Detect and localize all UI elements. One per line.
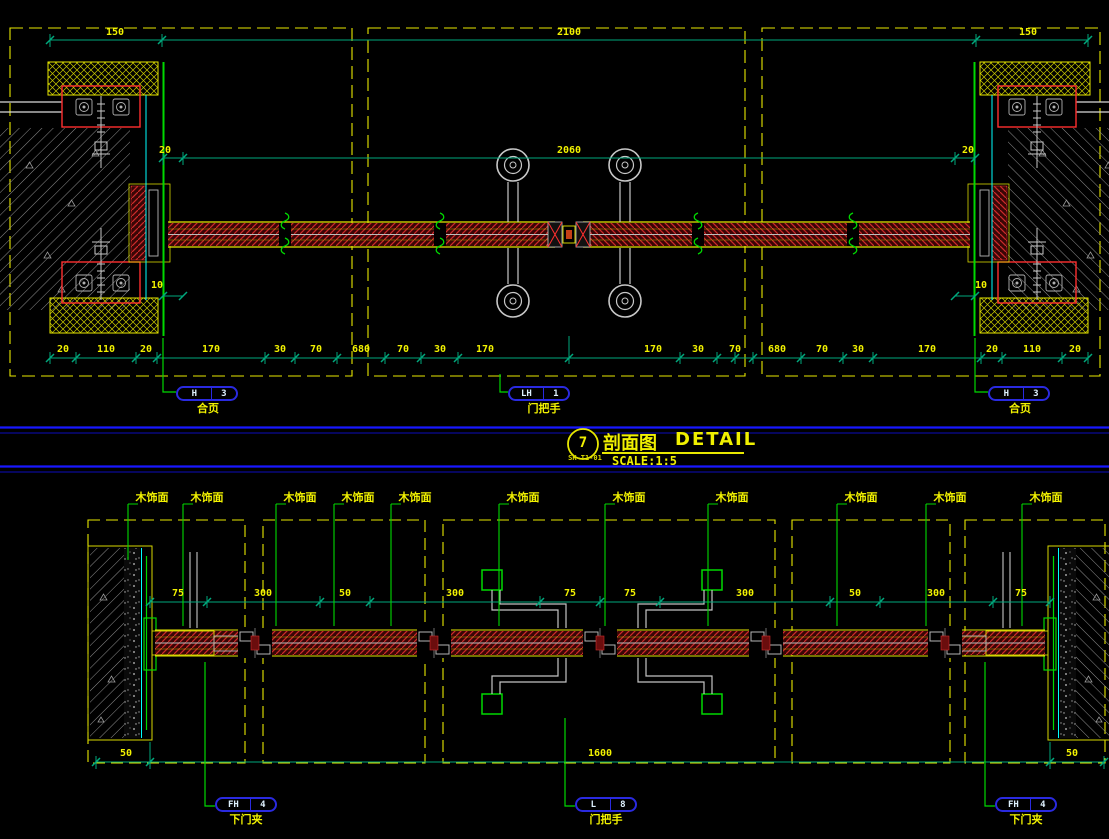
dim-label: 50 [849, 588, 861, 599]
drawing-geometry-layer [0, 0, 1109, 839]
detail-boundary-boxes [10, 28, 1100, 376]
finish-label: 木饰面 [284, 492, 317, 504]
tag-label: 下门夹 [1010, 814, 1043, 826]
tag-index: 3 [212, 388, 236, 399]
tag-label: 门把手 [528, 403, 561, 415]
dim-label: 75 [1015, 588, 1027, 599]
dim-label: 50 [120, 748, 132, 759]
right-wall-assembly [576, 62, 1109, 336]
tag-index: 4 [1031, 799, 1055, 810]
dim-label: 30 [274, 344, 286, 355]
hardware-tag-floor-clamp-left: FH 4 [215, 797, 277, 812]
finish-label: 木饰面 [934, 492, 967, 504]
dim-label: 10 [151, 280, 163, 291]
finish-label: 木饰面 [613, 492, 646, 504]
dim-label: 170 [476, 344, 494, 355]
left-wall-assembly [0, 62, 562, 336]
hardware-tag-hinge-right: H 3 [988, 386, 1050, 401]
dim-label: 170 [918, 344, 936, 355]
tag-code: H [990, 388, 1024, 399]
tag-code: FH [997, 799, 1031, 810]
dim-label: 30 [692, 344, 704, 355]
hardware-tag-hinge-left: H 3 [176, 386, 238, 401]
finish-label: 木饰面 [507, 492, 540, 504]
finish-label: 木饰面 [845, 492, 878, 504]
finish-label: 木饰面 [716, 492, 749, 504]
dim-label: 30 [852, 344, 864, 355]
dim-label: 30 [434, 344, 446, 355]
dim-label: 70 [310, 344, 322, 355]
dim-label: 20 [962, 145, 974, 156]
tag-label: 门把手 [590, 814, 623, 826]
dim-label: 680 [768, 344, 786, 355]
tag-label: 合页 [1009, 403, 1031, 415]
dim-label: 70 [397, 344, 409, 355]
finish-label: 木饰面 [136, 492, 169, 504]
dim-label: 70 [729, 344, 741, 355]
dim-label: 110 [97, 344, 115, 355]
door-meeting-stile [563, 226, 575, 243]
dim-label: 300 [927, 588, 945, 599]
dim-label: 170 [202, 344, 220, 355]
dim-label: 2060 [557, 145, 581, 156]
bottom-tag-leader-lines [205, 662, 995, 806]
dim-label: 70 [816, 344, 828, 355]
dim-label: 20 [1069, 344, 1081, 355]
plan-door-panel [152, 628, 1048, 658]
finish-label-leader-lines [128, 504, 1032, 626]
finish-label: 木饰面 [191, 492, 224, 504]
tag-index: 8 [611, 799, 635, 810]
dim-label: 1600 [588, 748, 612, 759]
dim-label: 75 [624, 588, 636, 599]
detail-number: 7 [579, 435, 587, 451]
drawing-scale: SCALE:1:5 [612, 454, 677, 468]
dim-label: 20 [57, 344, 69, 355]
dim-label: 680 [352, 344, 370, 355]
dim-label: 110 [1023, 344, 1041, 355]
tag-code: LH [510, 388, 544, 399]
cad-drawing-canvas: 150 2100 150 20 2060 20 10 10 20 110 20 … [0, 0, 1109, 839]
tag-label: 下门夹 [230, 814, 263, 826]
dim-label: 50 [1066, 748, 1078, 759]
dim-label: 50 [339, 588, 351, 599]
dim-label: 300 [446, 588, 464, 599]
dim-label: 10 [975, 280, 987, 291]
tag-label: 合页 [197, 403, 219, 415]
finish-label: 木饰面 [342, 492, 375, 504]
detail-code: SK-T1-01 [568, 454, 602, 462]
hardware-tag-handle-bottom: L 8 [575, 797, 637, 812]
top-dimension-lines [46, 34, 1092, 364]
dim-label: 75 [172, 588, 184, 599]
dim-label: 20 [159, 145, 171, 156]
tag-index: 1 [544, 388, 568, 399]
tag-code: L [577, 799, 611, 810]
tag-index: 4 [251, 799, 275, 810]
hardware-tag-handle-center: LH 1 [508, 386, 570, 401]
dim-label: 2100 [557, 27, 581, 38]
dim-label: 75 [564, 588, 576, 599]
finish-label: 木饰面 [399, 492, 432, 504]
dim-label: 300 [736, 588, 754, 599]
dim-label: 170 [644, 344, 662, 355]
dim-label: 20 [986, 344, 998, 355]
dim-label: 20 [140, 344, 152, 355]
dim-label: 300 [254, 588, 272, 599]
tag-index: 3 [1024, 388, 1048, 399]
bottom-plan-drawing [88, 504, 1109, 806]
top-tag-leader-lines [163, 338, 988, 392]
dim-label: 150 [1019, 27, 1037, 38]
bottom-dimension-lines [92, 596, 1108, 769]
top-section-drawing [0, 28, 1109, 392]
title-separator-rules [0, 428, 1109, 473]
hardware-tag-floor-clamp-right: FH 4 [995, 797, 1057, 812]
tag-code: FH [217, 799, 251, 810]
tag-code: H [178, 388, 212, 399]
dim-label: 150 [106, 27, 124, 38]
finish-label: 木饰面 [1030, 492, 1063, 504]
